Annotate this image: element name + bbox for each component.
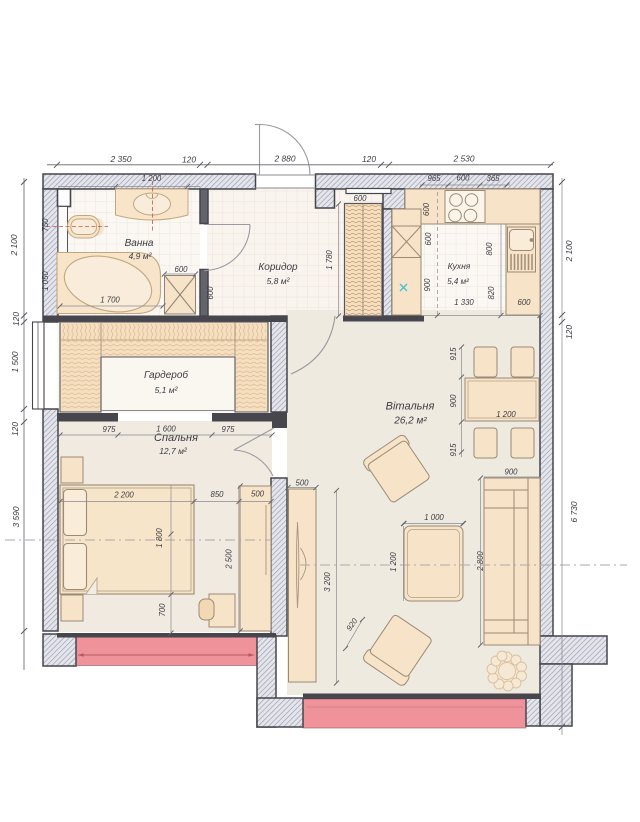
- svg-text:1 700: 1 700: [100, 296, 120, 305]
- svg-text:700: 700: [158, 603, 167, 617]
- svg-text:3 200: 3 200: [323, 572, 332, 592]
- svg-text:120: 120: [182, 155, 196, 165]
- svg-text:915: 915: [449, 347, 458, 361]
- svg-text:3 590: 3 590: [11, 506, 21, 527]
- svg-text:2 100: 2 100: [9, 234, 19, 256]
- svg-text:1 200: 1 200: [142, 174, 162, 183]
- svg-text:2 100: 2 100: [564, 240, 574, 262]
- svg-text:1 200: 1 200: [496, 410, 516, 419]
- svg-text:965: 965: [427, 174, 441, 183]
- svg-text:1 200: 1 200: [389, 552, 398, 572]
- svg-text:1 780: 1 780: [325, 250, 334, 270]
- svg-text:900: 900: [423, 278, 432, 292]
- svg-text:900: 900: [449, 394, 458, 408]
- svg-text:5,1 м²: 5,1 м²: [155, 385, 179, 395]
- svg-text:Вітальня: Вітальня: [386, 401, 435, 413]
- svg-text:120: 120: [10, 422, 20, 436]
- svg-text:Коридор: Коридор: [258, 262, 298, 273]
- svg-text:500: 500: [251, 490, 265, 499]
- svg-text:5,4 м²: 5,4 м²: [447, 277, 469, 286]
- svg-text:600: 600: [456, 174, 470, 183]
- svg-text:600: 600: [517, 298, 531, 307]
- svg-text:2 880: 2 880: [274, 154, 296, 164]
- svg-text:Ванна: Ванна: [125, 238, 154, 249]
- svg-text:1 600: 1 600: [156, 425, 176, 434]
- svg-text:500: 500: [295, 479, 309, 488]
- svg-text:600: 600: [424, 232, 433, 246]
- svg-text:6 730: 6 730: [569, 501, 579, 522]
- svg-text:975: 975: [221, 425, 235, 434]
- svg-text:4,9 м²: 4,9 м²: [129, 251, 153, 261]
- svg-text:900: 900: [504, 468, 518, 477]
- svg-text:850: 850: [210, 490, 224, 499]
- svg-text:2 350: 2 350: [110, 154, 132, 164]
- svg-text:Спальня: Спальня: [154, 432, 198, 444]
- svg-text:2 500: 2 500: [225, 549, 234, 570]
- svg-text:600: 600: [422, 202, 431, 216]
- svg-text:750: 750: [41, 218, 50, 232]
- svg-text:Гардероб: Гардероб: [144, 369, 188, 381]
- svg-text:120: 120: [564, 325, 574, 339]
- svg-text:600: 600: [206, 286, 215, 300]
- svg-text:Кухня: Кухня: [448, 261, 471, 271]
- svg-text:365: 365: [486, 174, 500, 183]
- svg-text:1 500: 1 500: [10, 351, 20, 372]
- svg-text:820: 820: [487, 286, 496, 300]
- svg-text:2 200: 2 200: [113, 491, 134, 500]
- svg-text:12,7 м²: 12,7 м²: [159, 446, 188, 456]
- svg-text:915: 915: [449, 443, 458, 457]
- svg-text:120: 120: [11, 312, 21, 326]
- svg-text:1 330: 1 330: [454, 298, 474, 307]
- svg-text:2 530: 2 530: [453, 154, 475, 164]
- svg-text:26,2 м²: 26,2 м²: [393, 416, 427, 427]
- svg-text:120: 120: [362, 154, 376, 164]
- svg-text:975: 975: [102, 425, 116, 434]
- svg-text:600: 600: [174, 265, 188, 274]
- svg-text:1 000: 1 000: [424, 513, 444, 522]
- svg-text:5,8 м²: 5,8 м²: [267, 276, 291, 286]
- svg-text:800: 800: [485, 242, 494, 256]
- svg-text:1 050: 1 050: [41, 271, 50, 291]
- svg-text:600: 600: [353, 194, 367, 203]
- svg-text:1 800: 1 800: [155, 528, 164, 548]
